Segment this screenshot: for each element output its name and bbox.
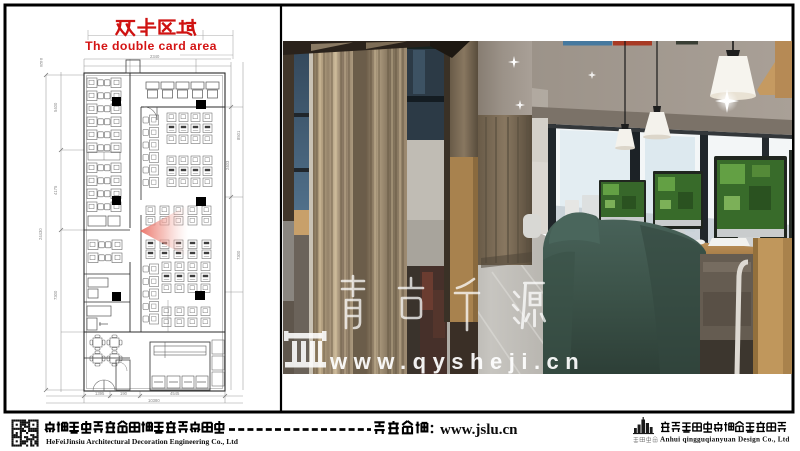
svg-text:www.jslu.cn: www.jslu.cn: [440, 422, 518, 438]
svg-text:2403: 2403: [225, 160, 230, 170]
svg-text:190: 190: [120, 391, 128, 396]
svg-text:HeFeiJinsiu Architectural Deco: HeFeiJinsiu Architectural Decoration Eng…: [46, 437, 239, 446]
svg-text:7300: 7300: [53, 290, 58, 300]
svg-text:2340: 2340: [150, 54, 160, 59]
svg-text:10380: 10380: [148, 398, 160, 403]
svg-text:The double card area: The double card area: [85, 39, 217, 53]
svg-text:1395: 1395: [95, 391, 105, 396]
svg-text:Anhui qingguqianyuan Design Co: Anhui qingguqianyuan Design Co., Ltd: [660, 436, 790, 444]
svg-text:7300: 7300: [236, 250, 241, 260]
svg-text:8501: 8501: [236, 130, 241, 140]
svg-text:4545: 4545: [170, 391, 180, 396]
svg-text:www.qysheji.cn: www.qysheji.cn: [329, 349, 585, 374]
svg-text:5400: 5400: [53, 102, 58, 112]
svg-text:4175: 4175: [53, 185, 58, 195]
svg-text:8:820: 8:820: [39, 58, 43, 67]
svg-text:24430: 24430: [38, 228, 43, 240]
